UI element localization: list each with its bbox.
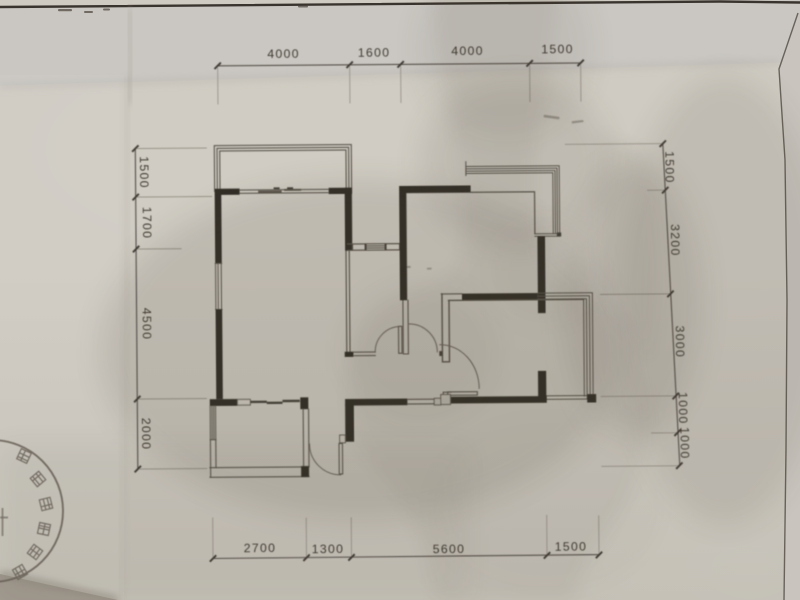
svg-text:4000: 4000 xyxy=(267,47,300,61)
svg-text:1500: 1500 xyxy=(137,156,151,189)
svg-text:1700: 1700 xyxy=(140,207,154,240)
svg-text:1600: 1600 xyxy=(358,46,391,60)
